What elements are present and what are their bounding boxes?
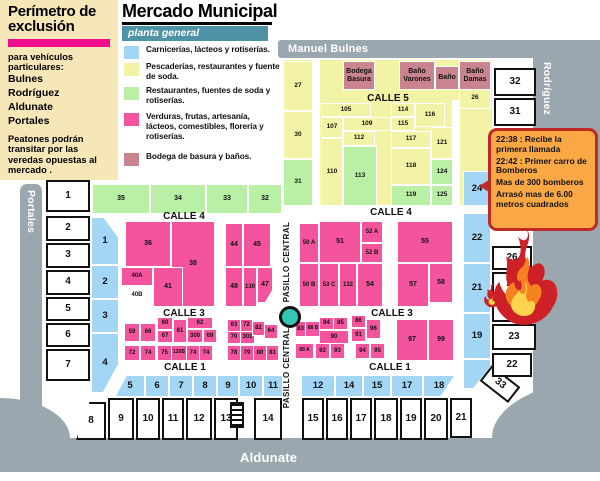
exclusion-street-item: Aldunate [8, 101, 112, 114]
stall-5: 5 [116, 376, 144, 396]
exclusion-street-item: Bulnes [8, 73, 112, 86]
stall-94: 94 [356, 344, 369, 358]
legend-item: Carnicerías, lácteos y rotiserías. [124, 45, 282, 62]
stall-14: 14 [336, 376, 362, 396]
legend-swatch [124, 87, 139, 100]
exclusion-street-item: Portales [8, 115, 112, 128]
fountain-circle-icon [279, 306, 301, 328]
legend-swatch [124, 153, 139, 166]
stall-31: 31 [494, 98, 536, 126]
stall-114: 114 [392, 104, 414, 116]
stall-130: 130 [244, 268, 256, 306]
flame-icon [486, 224, 566, 332]
stall-62: 62 [188, 318, 212, 328]
stall-74: 74 [200, 346, 212, 360]
stall-78: 78 [228, 346, 240, 360]
stall-121: 121 [432, 128, 452, 158]
stall-bodega-basura: Bodega Basura [344, 62, 374, 89]
stall-48: 48 [226, 268, 242, 306]
stall-55: 55 [398, 222, 452, 262]
stall-70: 70 [228, 332, 240, 343]
stall-93: 93 [331, 344, 344, 358]
subtitle-bar: planta general [122, 26, 268, 41]
stall-35: 35 [93, 185, 149, 213]
exclusion-note: Peatones podrán transitar por las vereda… [8, 134, 112, 176]
stall-64: 64 [265, 325, 277, 338]
stall-15: 15 [364, 376, 390, 396]
stall-27: 27 [284, 62, 312, 110]
street-label-calle-4: CALLE 4 [360, 207, 422, 218]
stall-15: 15 [302, 398, 324, 440]
stall-1: 1 [92, 218, 118, 264]
stall-75: 75 [158, 346, 171, 360]
stall-74: 74 [141, 346, 155, 360]
stall-118: 118 [392, 149, 430, 184]
stall-84: 84 [320, 318, 333, 329]
stall-baño: Baño [436, 67, 458, 89]
stall-125: 125 [432, 186, 452, 205]
stall-54: 54 [358, 264, 382, 306]
stall-6: 6 [146, 376, 168, 396]
stall-66: 66 [141, 324, 155, 341]
stall-10: 10 [136, 398, 160, 440]
stall-88-b: 88 B [306, 322, 320, 336]
stall-11: 11 [162, 398, 184, 440]
stall-117: 117 [392, 132, 430, 147]
stall-116: 116 [416, 104, 444, 126]
legend-item: Bodega de basura y baños. [124, 152, 282, 166]
street-label-calle-5: CALLE 5 [358, 93, 418, 104]
exclusion-perimeter-box: Perímetro de exclusión para vehículos pa… [0, 0, 118, 180]
stall-31: 31 [284, 160, 312, 205]
stall-74: 74 [187, 346, 199, 360]
stall-14: 14 [254, 398, 282, 440]
stall-12: 12 [186, 398, 212, 440]
stall-59: 59 [125, 324, 139, 341]
stall-58: 58 [430, 264, 452, 302]
callout-line-prefix: Arrasó [496, 189, 523, 199]
stall-124: 124 [432, 160, 452, 184]
stall-6: 6 [46, 323, 90, 347]
stall-4: 4 [92, 334, 118, 392]
stall-21: 21 [450, 398, 472, 438]
stall-7: 7 [170, 376, 192, 396]
stall-113: 113 [344, 147, 376, 205]
stall-2: 2 [46, 216, 90, 241]
stall-81: 81 [267, 346, 278, 360]
stall-51: 51 [320, 222, 360, 262]
stall-22: 22 [492, 353, 532, 377]
callout-line: 22:42 : Primer carro de Bomberos [496, 157, 590, 177]
legend-label: Verduras, frutas, artesanía, lácteos, co… [146, 112, 282, 141]
legend-label: Pescaderías, restaurantes y fuente de so… [146, 62, 282, 82]
corridor-label-pasillo-central: PASILLO CENTRAL [282, 323, 294, 413]
stall-9: 9 [108, 398, 134, 440]
callout-line-prefix: Mas [496, 177, 512, 187]
legend-swatch [124, 46, 139, 59]
legend-swatch [124, 113, 139, 126]
page-title: Mercado Municipal [122, 1, 277, 22]
stall-72: 72 [241, 320, 252, 331]
stall-4: 4 [46, 270, 90, 295]
legend-item: Verduras, frutas, artesanía, lácteos, co… [124, 112, 282, 152]
callout-line: 22:38 : Recibe la primera llamada [496, 135, 590, 155]
stall-45: 45 [244, 224, 270, 266]
stall-1: 1 [46, 180, 90, 212]
stall-47: 47 [258, 268, 272, 302]
stall-17: 17 [392, 376, 422, 396]
exclusion-street-item: Rodríguez [8, 87, 112, 100]
stall-300: 300 [188, 330, 202, 342]
stall-97: 97 [397, 320, 427, 360]
stall-10: 10 [240, 376, 262, 396]
stall-110: 110 [322, 139, 342, 205]
stall-32: 32 [494, 68, 536, 96]
street-label-calle-1: CALLE 1 [153, 362, 217, 373]
stall-50-a: 50 A [300, 224, 318, 262]
stall-7: 7 [46, 349, 90, 381]
stall-119: 119 [392, 186, 430, 205]
street-label-calle-3: CALLE 3 [361, 308, 423, 319]
stall-32: 32 [249, 185, 281, 213]
stall-67: 67 [158, 331, 172, 342]
legend-item: Pescaderías, restaurantes y fuente de so… [124, 62, 282, 86]
stall-115: 115 [392, 118, 414, 130]
stall-baño-varones: Baño Varones [400, 62, 434, 89]
callout-line: Arrasó mas de 6.00 metros cuadrados [496, 190, 590, 210]
stall-96: 96 [367, 320, 380, 338]
stall-18: 18 [374, 398, 398, 440]
stall-8: 8 [76, 402, 106, 440]
stall-72: 72 [125, 346, 139, 360]
stall-26: 26 [460, 88, 490, 108]
stall-baño-damas: Baño Damas [460, 62, 490, 89]
stall-107: 107 [322, 118, 342, 137]
callout-line-prefix: 22:38 : [496, 134, 523, 144]
callout-line: Mas de 300 bomberos [496, 178, 590, 188]
callout-line-prefix: 22:42 : [496, 156, 523, 166]
stall-44: 44 [226, 224, 242, 266]
stall-16: 16 [326, 398, 348, 440]
stall-41: 41 [154, 268, 182, 306]
stairs-icon [230, 402, 244, 428]
stall-85: 85 [334, 318, 347, 329]
stall-79: 79 [241, 346, 253, 360]
street-label-calle-3: CALLE 3 [153, 308, 215, 319]
stall-50-b: 50 B [300, 264, 318, 306]
stall-63: 63 [228, 320, 240, 331]
stall-34: 34 [151, 185, 205, 213]
stall-12: 12 [302, 376, 334, 396]
stall-132: 132 [340, 264, 356, 306]
stall-3: 3 [46, 243, 90, 268]
stall-105: 105 [322, 104, 370, 116]
legend-label: Carnicerías, lácteos y rotiserías. [146, 45, 270, 55]
stall-112: 112 [344, 132, 374, 145]
stall-18: 18 [424, 376, 454, 396]
stall-2: 2 [92, 266, 118, 298]
stall-57: 57 [398, 264, 428, 306]
stall-126b: 126B [172, 346, 186, 360]
market-infographic: Manuel Bulnes Rodríguez Aldunate Portale… [0, 0, 600, 481]
street-label-calle-1: CALLE 1 [358, 362, 422, 373]
stall-92: 92 [316, 344, 329, 358]
stall-11: 11 [264, 376, 282, 396]
legend-swatch [124, 63, 139, 76]
stall-19: 19 [400, 398, 422, 440]
exclusion-accent-bar [8, 39, 110, 47]
stall-95: 95 [371, 344, 384, 358]
stall-40a: 40A [122, 268, 152, 285]
street-label-calle-4: CALLE 4 [153, 211, 215, 222]
legend-item: Restaurantes, fuentes de soda y rotiserí… [124, 86, 282, 112]
exclusion-title: Perímetro de exclusión [8, 4, 112, 35]
legend-label: Restaurantes, fuentes de soda y rotiserí… [146, 86, 282, 106]
stall-33: 33 [207, 185, 247, 213]
exclusion-street-list: BulnesRodríguezAldunatePortales [8, 73, 112, 128]
stall-69: 69 [204, 330, 216, 342]
stall-61: 61 [174, 320, 186, 342]
stall-9: 9 [218, 376, 238, 396]
stall-36: 36 [126, 222, 170, 266]
stall-30: 30 [284, 112, 312, 158]
stall-40b: 40B [122, 287, 152, 303]
stall-80: 80 [254, 346, 266, 360]
stall-5: 5 [46, 297, 90, 321]
exclusion-subtitle: para vehículos particulares: [8, 52, 112, 72]
stall-91: 91 [352, 329, 365, 341]
stall-82: 82 [253, 322, 264, 335]
stall-60: 60 [158, 318, 172, 329]
stall-52-a: 52 A [362, 222, 382, 242]
stall-20: 20 [424, 398, 448, 440]
legend-label: Bodega de basura y baños. [146, 152, 251, 162]
stall-8: 8 [194, 376, 216, 396]
fire-timeline-callout: 22:38 : Recibe la primera llamada22:42 :… [488, 128, 598, 231]
legend: Carnicerías, lácteos y rotiserías.Pescad… [124, 45, 282, 166]
flame-icon [477, 281, 508, 309]
stall-3: 3 [92, 300, 118, 332]
callout-line-text: de 300 bomberos [512, 177, 583, 187]
stall-52-b: 52 B [362, 244, 382, 262]
title-underline [122, 22, 272, 25]
stall-17: 17 [350, 398, 372, 440]
stall-90: 90 [320, 331, 348, 343]
stall-109: 109 [344, 118, 390, 130]
corridor-label-pasillo-central: PASILLO CENTRAL [282, 217, 294, 307]
stall-99: 99 [429, 320, 453, 360]
stall-53-c: 53 C [320, 264, 338, 306]
stall-88-a: 88 A [296, 344, 313, 358]
